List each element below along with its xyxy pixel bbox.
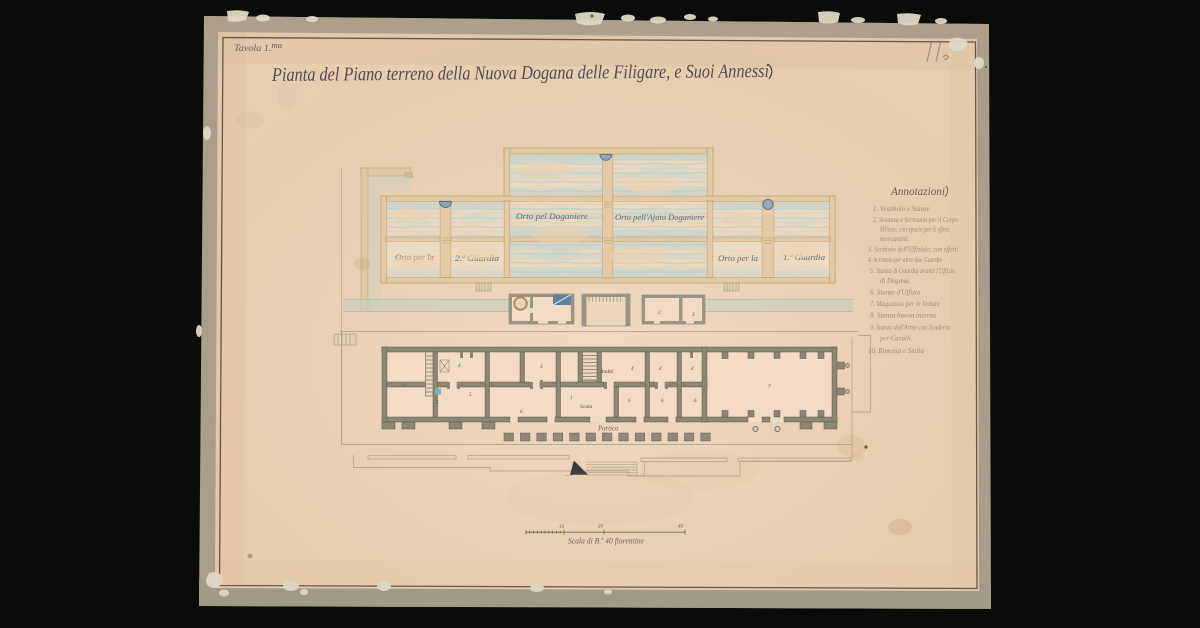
svg-text:4. Scrittoio per altre due Gua: 4. Scrittoio per altre due Guardie [868,256,942,264]
svg-text:7. Magazzino per le Vetture: 7. Magazzino per le Vetture [870,300,940,308]
svg-text:mercantili.: mercantili. [880,236,910,243]
svg-text:40: 40 [678,525,684,530]
svg-text:Orto per la: Orto per la [718,254,758,263]
svg-text:6. Stanze d'Uffizio: 6. Stanze d'Uffizio [870,290,921,297]
svg-text:10: 10 [559,525,565,530]
svg-text:8. Stanza buona interna: 8. Stanza buona interna [870,312,936,320]
svg-text:5. Stanza di Guardia avanti l': 5. Stanza di Guardia avanti l'Uffizio [870,267,955,275]
svg-text:Scala: Scala [580,404,592,410]
svg-text:Scala di B.ª 40 fiorentine: Scala di B.ª 40 fiorentine [568,536,644,546]
svg-text:di Dogana.: di Dogana. [880,278,911,285]
svg-text:9. Stanza dell'Arme con Scuder: 9. Stanza dell'Arme con Scuderia [870,324,950,332]
svg-text:10. Rimessa e Stalla: 10. Rimessa e Stalla [868,348,924,355]
svg-text:per Cavalli.: per Cavalli. [879,336,913,343]
svg-text:3. Scrittoio dell'Uffiziale; c: 3. Scrittoio dell'Uffiziale; con effetti [867,246,958,254]
svg-text:1: 1 [570,396,573,401]
svg-text:Annotazioni: Annotazioni [890,186,945,198]
svg-text:Milizia; con spazio per li eff: Milizia; con spazio per li effetti [879,226,950,234]
svg-text:1. Vestibolo e Stanze: 1. Vestibolo e Stanze [873,206,930,213]
svg-text:2. Sistanza e Scrivania per il: 2. Sistanza e Scrivania per il Corpo [873,216,958,224]
svg-text:Orto pell'Ajuto Doganiere: Orto pell'Ajuto Doganiere [615,213,704,222]
svg-text:Orto pel Doganiere: Orto pel Doganiere [516,212,589,221]
svg-text:Pianta del Piano terreno della: Pianta del Piano terreno della Nuova Dog… [271,61,769,86]
svg-text:Anditi: Anditi [599,369,614,375]
svg-text:Portico: Portico [597,426,619,433]
